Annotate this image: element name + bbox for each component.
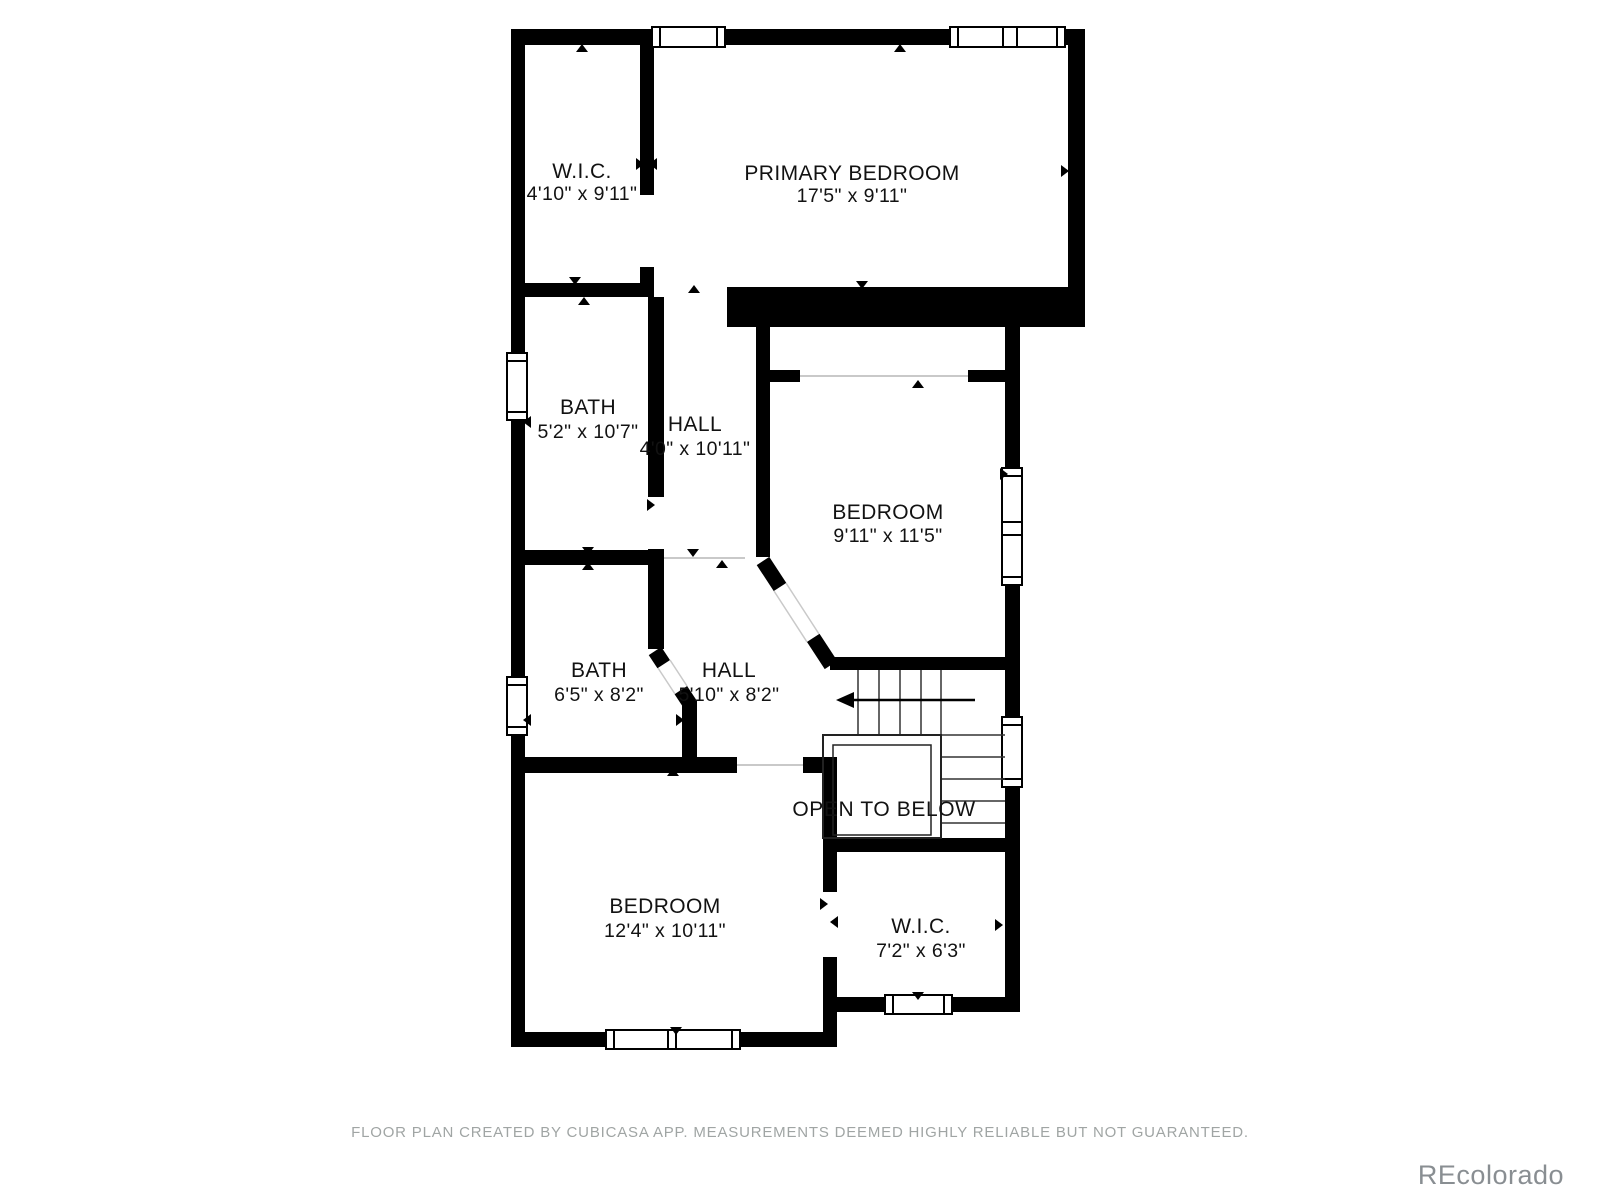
- open-to-below-outline: [823, 735, 941, 838]
- diagonal-walls: [655, 561, 831, 704]
- room-dims-bath-lower: 6'5" x 8'2": [554, 684, 644, 706]
- room-label-hall-lower: HALL: [702, 659, 756, 682]
- room-label-bath-upper: BATH: [560, 396, 616, 419]
- room-dims-bedroom-right: 9'11" x 11'5": [833, 525, 942, 547]
- window-top-right: [950, 27, 1065, 47]
- wall-wic1-divider-upper: [640, 45, 654, 195]
- room-label-hall-upper: HALL: [668, 413, 722, 436]
- room-dims-hall-lower: 5'10" x 8'2": [679, 684, 780, 706]
- room-label-primary-bedroom: PRIMARY BEDROOM: [744, 162, 959, 185]
- wall-right-upper: [1068, 29, 1085, 327]
- room-dims-hall-upper: 4'0" x 10'11": [640, 438, 751, 460]
- room-dims-bedroom-lower: 12'4" x 10'11": [604, 920, 726, 942]
- wall-bedroom1-left: [756, 327, 770, 557]
- wall-bedroom1-top-right: [968, 370, 1005, 382]
- room-dims-bath-upper: 5'2" x 10'7": [538, 421, 639, 443]
- wall-right-main: [1005, 327, 1020, 1012]
- window-left-bath2: [507, 677, 527, 735]
- window-top-left: [652, 27, 725, 47]
- recolorado-watermark: REcolorado: [1418, 1160, 1564, 1191]
- room-label-bedroom-right: BEDROOM: [832, 501, 943, 524]
- floor-plan-drawing: W.I.C. 4'10" x 9'11" PRIMARY BEDROOM 17'…: [0, 0, 1600, 1200]
- wall-hall1-left: [648, 297, 664, 497]
- wall-stair-left: [823, 757, 837, 892]
- room-dims-wic-lower: 7'2" x 6'3": [876, 940, 966, 962]
- floor-plan-page: W.I.C. 4'10" x 9'11" PRIMARY BEDROOM 17'…: [0, 0, 1600, 1200]
- room-label-wic-upper: W.I.C.: [552, 160, 612, 183]
- room-label-bedroom-lower: BEDROOM: [609, 895, 720, 918]
- wall-band-notch: [727, 287, 1085, 327]
- window-bottom-bedroom2: [606, 1030, 740, 1049]
- open-to-below-label: OPEN TO BELOW: [792, 798, 975, 821]
- wall-hall2-bottom: [511, 757, 737, 773]
- stair-direction-arrow: [836, 692, 975, 708]
- disclaimer-text: FLOOR PLAN CREATED BY CUBICASA APP. MEAS…: [0, 1124, 1600, 1141]
- window-right-bedroom: [1002, 468, 1022, 585]
- room-label-bath-lower: BATH: [571, 659, 627, 682]
- wall-bedroom1-top-left: [767, 370, 800, 382]
- room-label-wic-lower: W.I.C.: [891, 915, 951, 938]
- window-right-stairs: [1002, 717, 1022, 787]
- wall-wic1-bottom: [511, 283, 654, 297]
- wall-step-vertical: [823, 957, 837, 1047]
- room-dims-primary-bedroom: 17'5" x 9'11": [797, 185, 908, 207]
- window-left-bath1: [507, 353, 527, 420]
- room-dims-wic-upper: 4'10" x 9'11": [527, 183, 638, 205]
